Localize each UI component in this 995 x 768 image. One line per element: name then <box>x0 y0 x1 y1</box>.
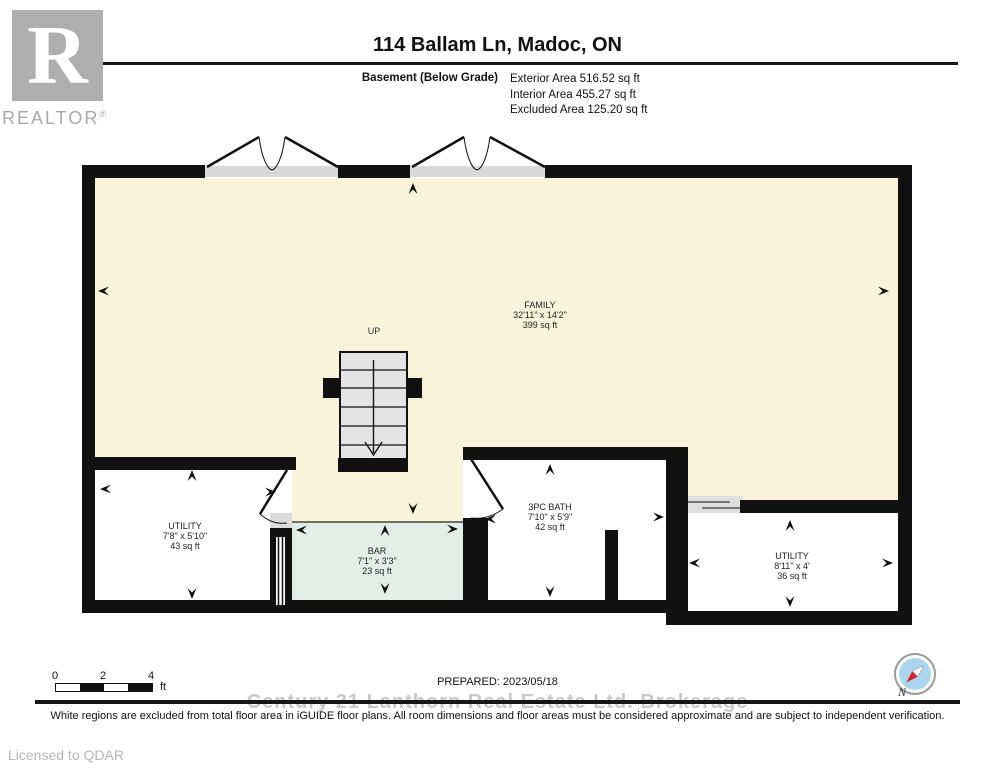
svg-text:7'10" x 5'9": 7'10" x 5'9" <box>528 512 572 522</box>
svg-text:36 sq ft: 36 sq ft <box>777 571 807 581</box>
sliding-door-opening <box>688 496 743 513</box>
wall-segment <box>463 518 488 613</box>
realtor-logo-letter: R <box>27 14 88 98</box>
window-opening <box>205 166 338 177</box>
wall-segment <box>898 165 912 625</box>
stairs-up-label: UP <box>368 326 381 336</box>
svg-text:399 sq ft: 399 sq ft <box>523 320 558 330</box>
stairs-bottom-wall <box>338 458 408 472</box>
window-leaf <box>285 137 338 167</box>
svg-text:7'8" x 5'10": 7'8" x 5'10" <box>163 531 207 541</box>
compass-icon: N <box>891 650 939 698</box>
pocket-door <box>276 537 285 605</box>
wall-segment <box>545 165 912 178</box>
wall-segment <box>82 600 688 613</box>
pocket-door-gap <box>276 537 285 605</box>
svg-text:UTILITY: UTILITY <box>775 551 809 561</box>
disclaimer-text: White regions are excluded from total fl… <box>0 710 995 722</box>
window-leaf <box>490 137 545 167</box>
wall-segment <box>82 457 296 470</box>
room-label-utility-right: UTILITY 8'11" x 4' 36 sq ft <box>774 551 810 581</box>
window-leaf <box>207 137 259 167</box>
realtor-wordmark: REALTOR® <box>2 108 108 129</box>
svg-text:23 sq ft: 23 sq ft <box>362 566 392 576</box>
wall-segment <box>463 447 687 460</box>
wall-segment <box>740 500 898 513</box>
svg-text:42 sq ft: 42 sq ft <box>535 522 565 532</box>
compass-north-label: N <box>897 685 907 698</box>
svg-text:3PC BATH: 3PC BATH <box>528 502 571 512</box>
bath-floor <box>488 460 666 600</box>
footer-divider <box>35 700 960 704</box>
wall-segment <box>605 530 618 600</box>
prepared-date: PREPARED: 2023/05/18 <box>0 676 995 688</box>
svg-text:32'11" x 14'2": 32'11" x 14'2" <box>513 310 567 320</box>
stair-wall-stub <box>323 378 340 398</box>
window-meet-arc <box>259 137 285 170</box>
door-jamb <box>270 513 292 529</box>
svg-text:FAMILY: FAMILY <box>524 300 555 310</box>
wall-segment <box>338 165 410 178</box>
wall-segment <box>82 165 95 613</box>
floor-plan-drawing: UP FAMILY <box>0 0 995 768</box>
realtor-logo: R <box>12 10 103 101</box>
floor-plan-page: R REALTOR® 114 Ballam Ln, Madoc, ON Base… <box>0 0 995 768</box>
svg-text:BAR: BAR <box>368 546 387 556</box>
window-opening <box>410 166 545 177</box>
floor-fills <box>95 178 898 611</box>
registered-mark: ® <box>99 109 108 119</box>
wall-segment <box>666 447 688 625</box>
svg-text:43 sq ft: 43 sq ft <box>170 541 200 551</box>
wall-segment <box>82 165 205 178</box>
svg-text:UTILITY: UTILITY <box>168 521 202 531</box>
svg-text:7'1" x 3'3": 7'1" x 3'3" <box>357 556 396 566</box>
wall-segment <box>666 611 912 625</box>
window-leaf <box>412 137 464 167</box>
svg-text:8'11" x 4': 8'11" x 4' <box>774 561 810 571</box>
window-meet-arc <box>464 137 490 170</box>
stair-wall-stub <box>407 378 422 398</box>
